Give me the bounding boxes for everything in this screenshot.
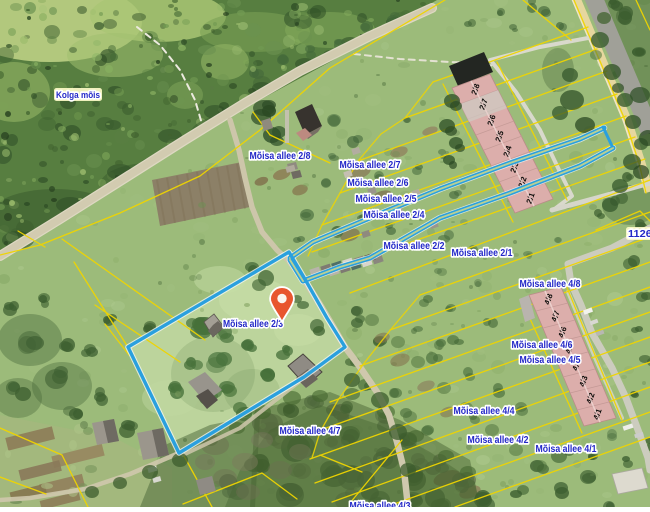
svg-text:Mõisa allee 4/6: Mõisa allee 4/6 — [512, 340, 573, 351]
svg-text:Mõisa allee 4/3: Mõisa allee 4/3 — [350, 501, 411, 507]
svg-text:Mõisa allee 2/1: Mõisa allee 2/1 — [452, 248, 513, 259]
svg-text:Mõisa allee 4/5: Mõisa allee 4/5 — [520, 355, 581, 366]
svg-text:Mõisa allee 2/6: Mõisa allee 2/6 — [348, 178, 409, 189]
svg-text:Mõisa allee 2/4: Mõisa allee 2/4 — [364, 210, 425, 221]
svg-text:Mõisa allee 2/5: Mõisa allee 2/5 — [356, 194, 417, 205]
svg-text:Mõisa allee 2/7: Mõisa allee 2/7 — [340, 160, 401, 171]
svg-text:Kolga mõis: Kolga mõis — [56, 90, 100, 100]
svg-text:Mõisa allee 2/8: Mõisa allee 2/8 — [250, 151, 311, 162]
svg-text:Mõisa allee 4/1: Mõisa allee 4/1 — [536, 444, 597, 455]
svg-text:Mõisa allee 4/4: Mõisa allee 4/4 — [454, 406, 515, 417]
svg-text:Mõisa allee 4/2: Mõisa allee 4/2 — [468, 435, 529, 446]
svg-text:Mõisa allee 4/7: Mõisa allee 4/7 — [280, 426, 341, 437]
svg-text:Mõisa allee 2/3: Mõisa allee 2/3 — [223, 319, 283, 330]
svg-text:Mõisa allee 4/8: Mõisa allee 4/8 — [520, 279, 581, 290]
svg-text:11265: 11265 — [628, 229, 650, 240]
svg-text:Mõisa allee 2/2: Mõisa allee 2/2 — [384, 241, 445, 252]
